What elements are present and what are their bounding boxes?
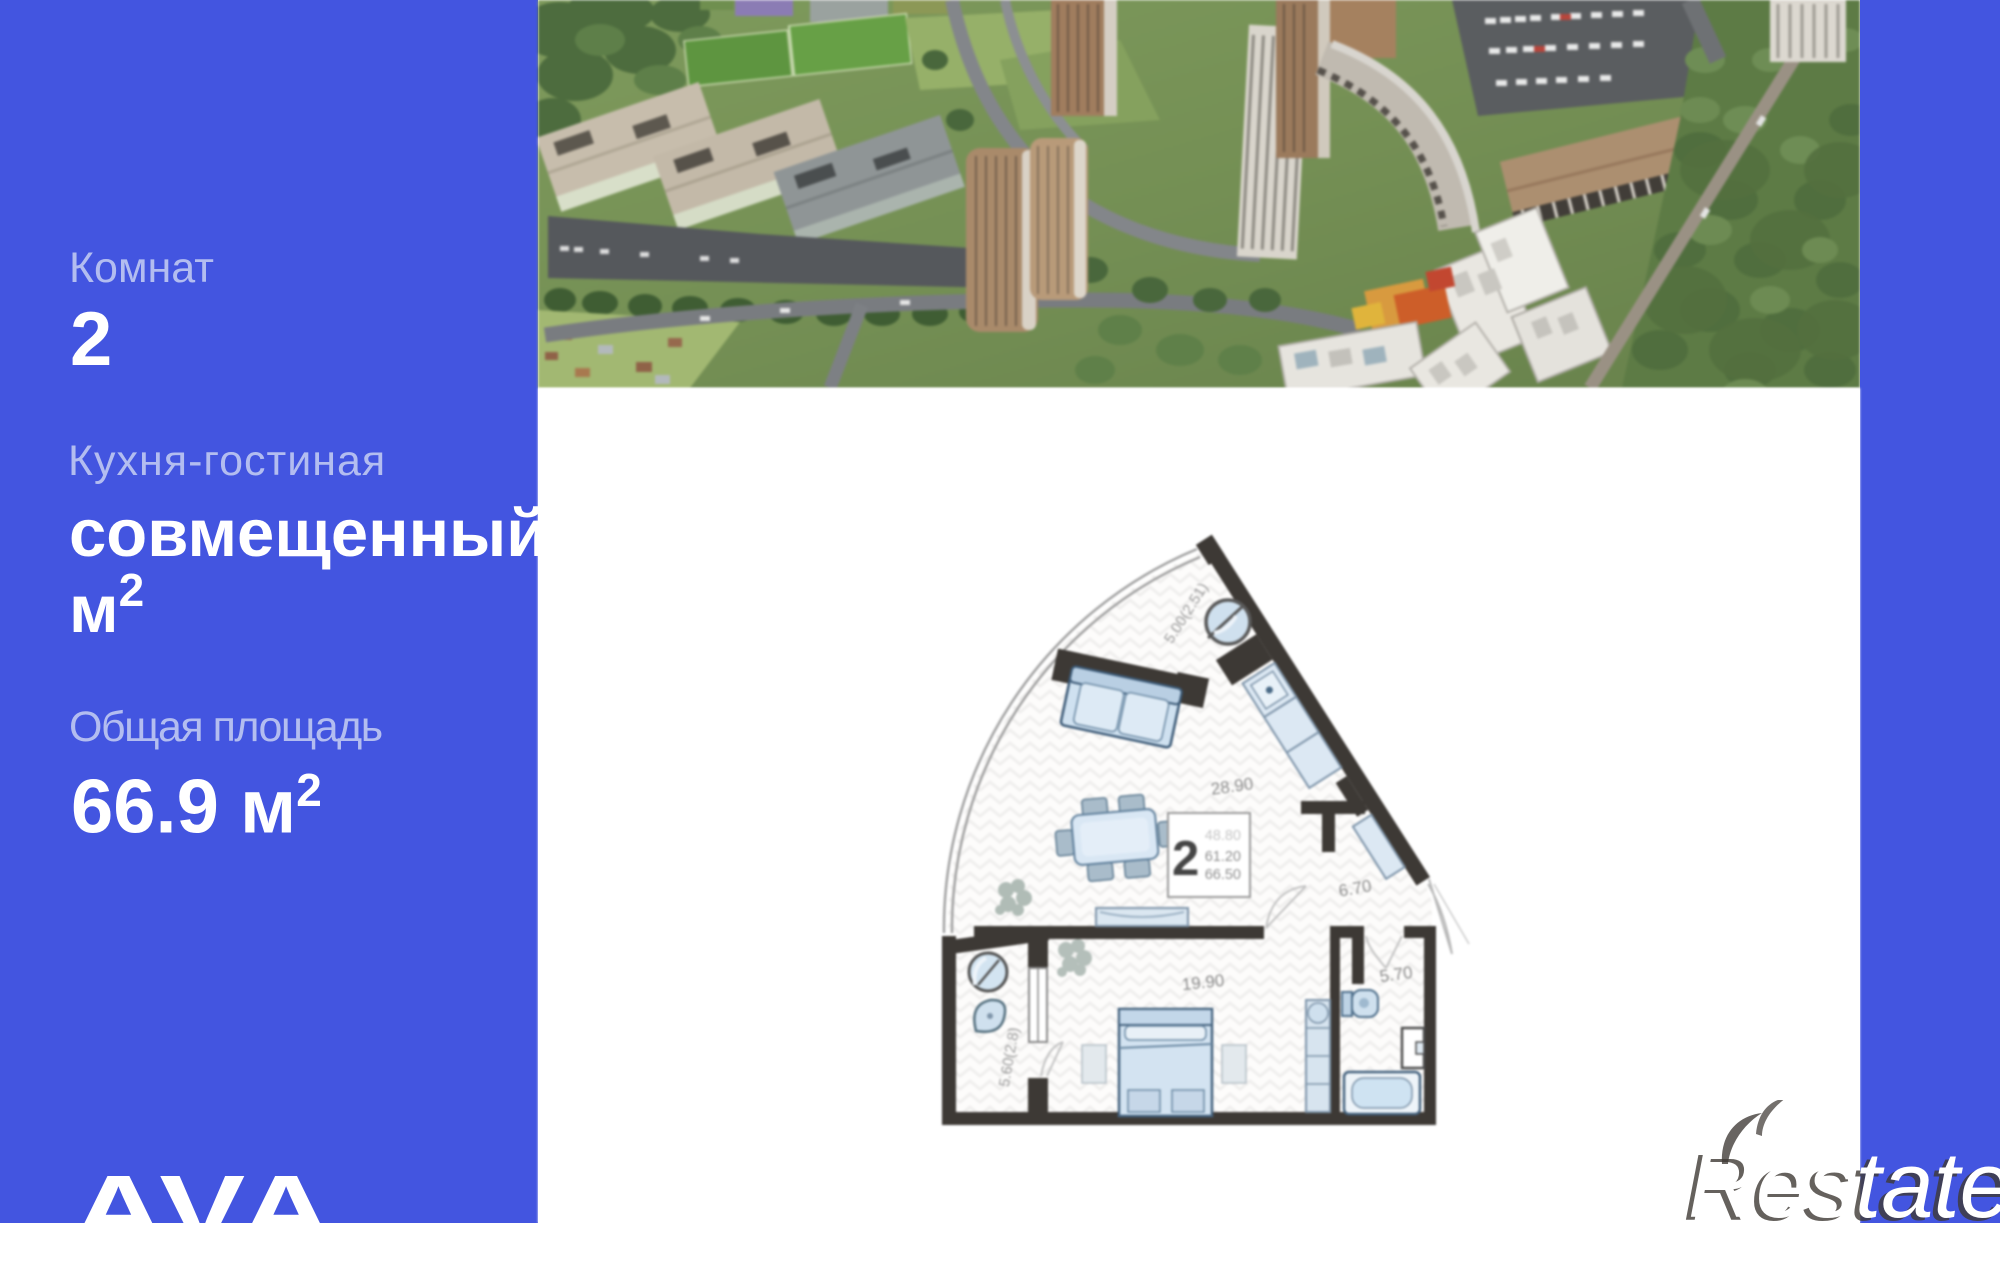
svg-text:48.80: 48.80 [1205,828,1241,844]
svg-text:2: 2 [1172,832,1199,886]
svg-text:66.50: 66.50 [1205,867,1241,883]
svg-text:61.20: 61.20 [1205,849,1241,865]
